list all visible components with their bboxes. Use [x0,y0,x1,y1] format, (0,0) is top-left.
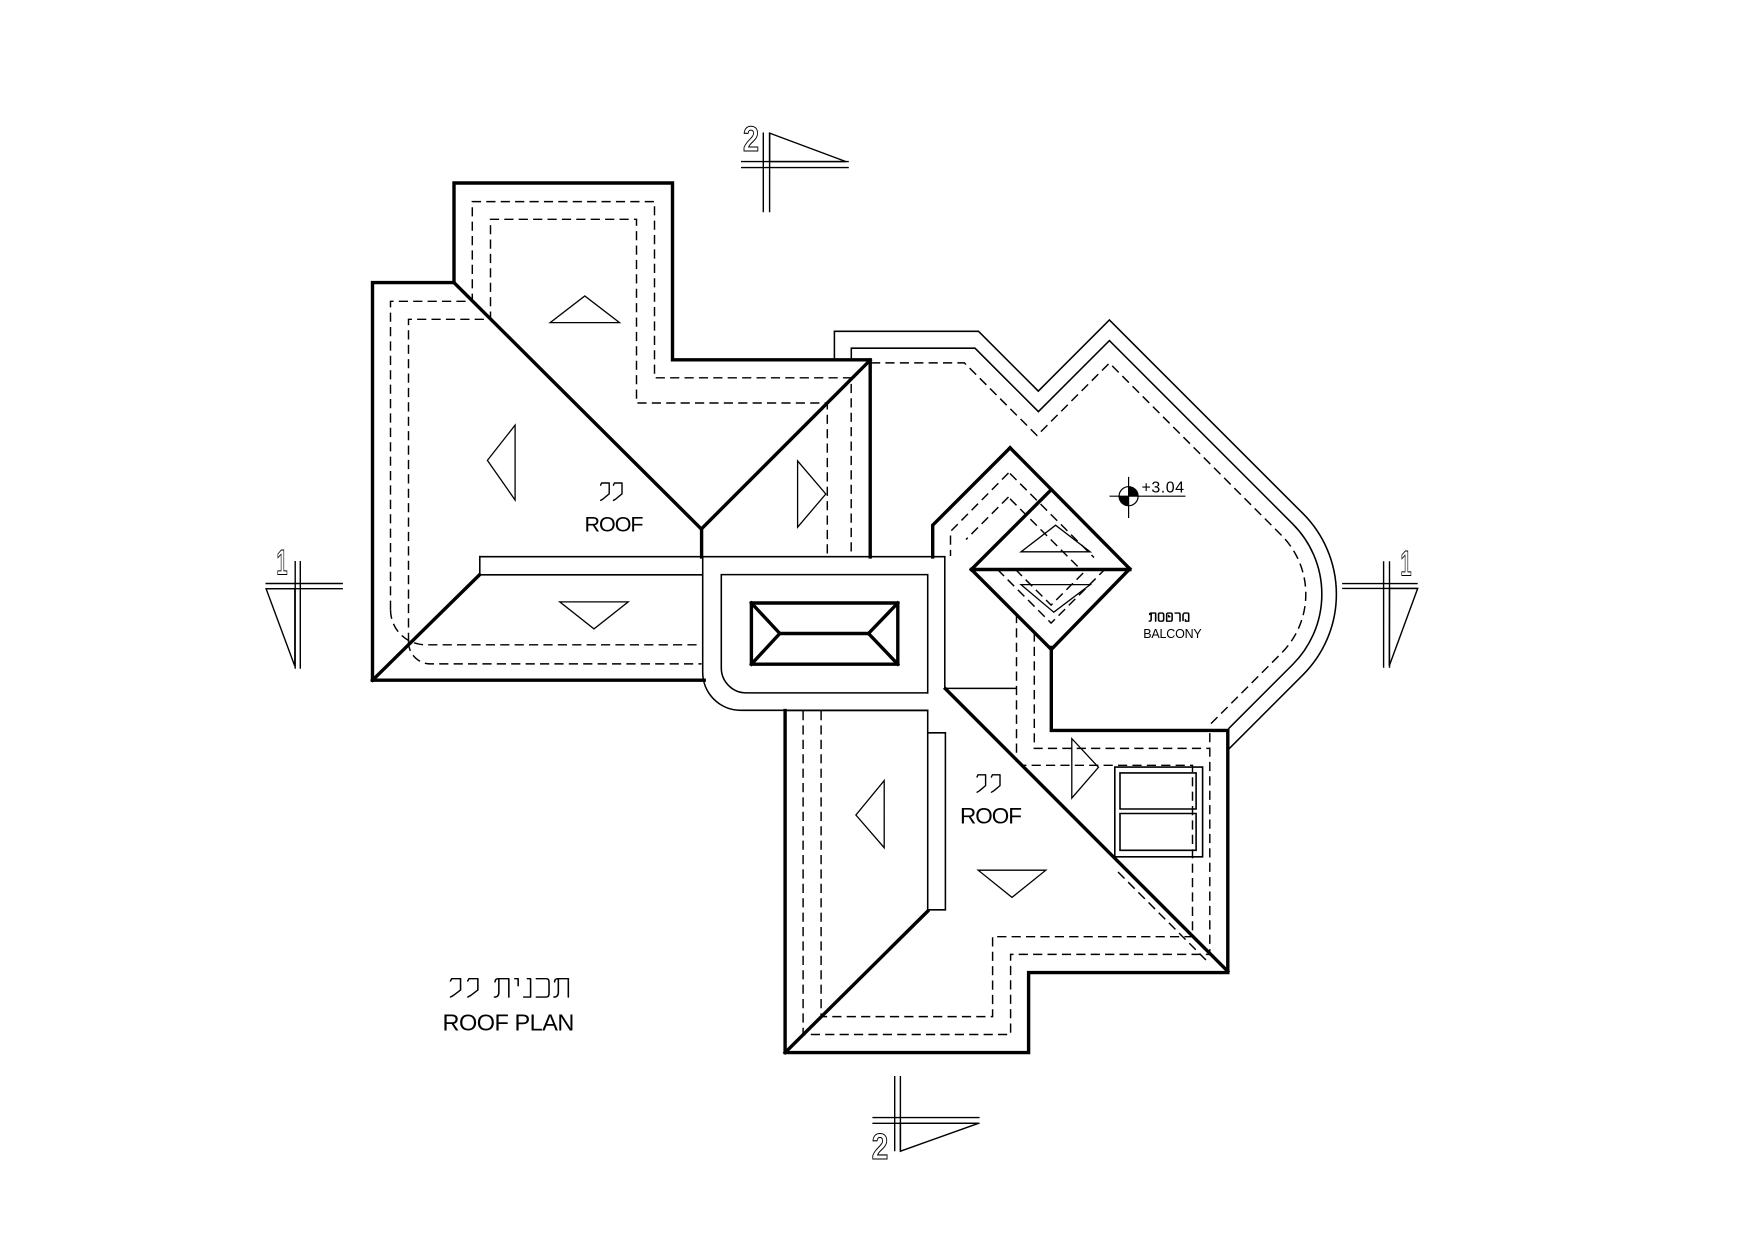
svg-text:2: 2 [872,1126,889,1167]
svg-text:ROOF: ROOF [584,512,643,536]
svg-text:BALCONY: BALCONY [1143,627,1202,641]
svg-text:+3.04: +3.04 [1142,480,1185,497]
svg-text:1: 1 [1401,545,1412,584]
svg-text:2: 2 [743,120,759,159]
svg-text:1: 1 [277,544,288,583]
svg-text:ROOF: ROOF [960,804,1021,829]
svg-text:ROOF PLAN: ROOF PLAN [443,1010,574,1036]
